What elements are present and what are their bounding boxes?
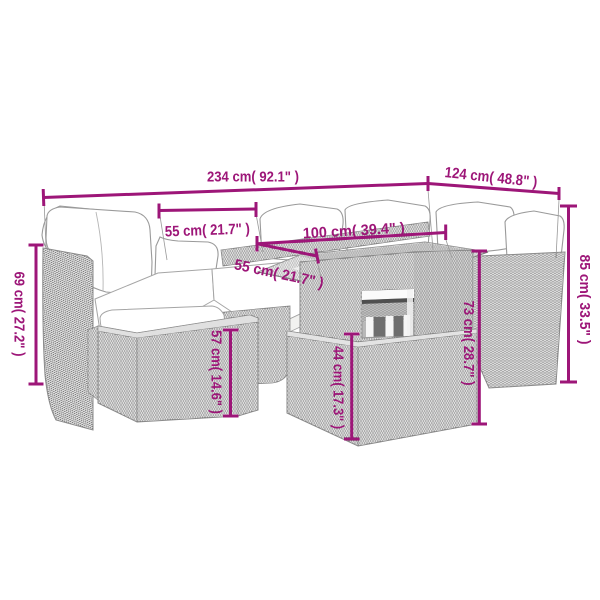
svg-text:55 cm( 21.7" ): 55 cm( 21.7" ) <box>165 221 251 241</box>
svg-text:44 cm( 17.3" ): 44 cm( 17.3" ) <box>329 346 346 429</box>
svg-text:57 cm( 14.6" ): 57 cm( 14.6" ) <box>207 330 224 414</box>
svg-text:73 cm( 28.7" ): 73 cm( 28.7" ) <box>460 301 477 386</box>
svg-text:234 cm( 92.1" ): 234 cm( 92.1" ) <box>207 169 299 186</box>
svg-text:69 cm( 27.2" ): 69 cm( 27.2" ) <box>10 272 27 357</box>
svg-text:85 cm( 33.5" ): 85 cm( 33.5" ) <box>576 255 593 345</box>
